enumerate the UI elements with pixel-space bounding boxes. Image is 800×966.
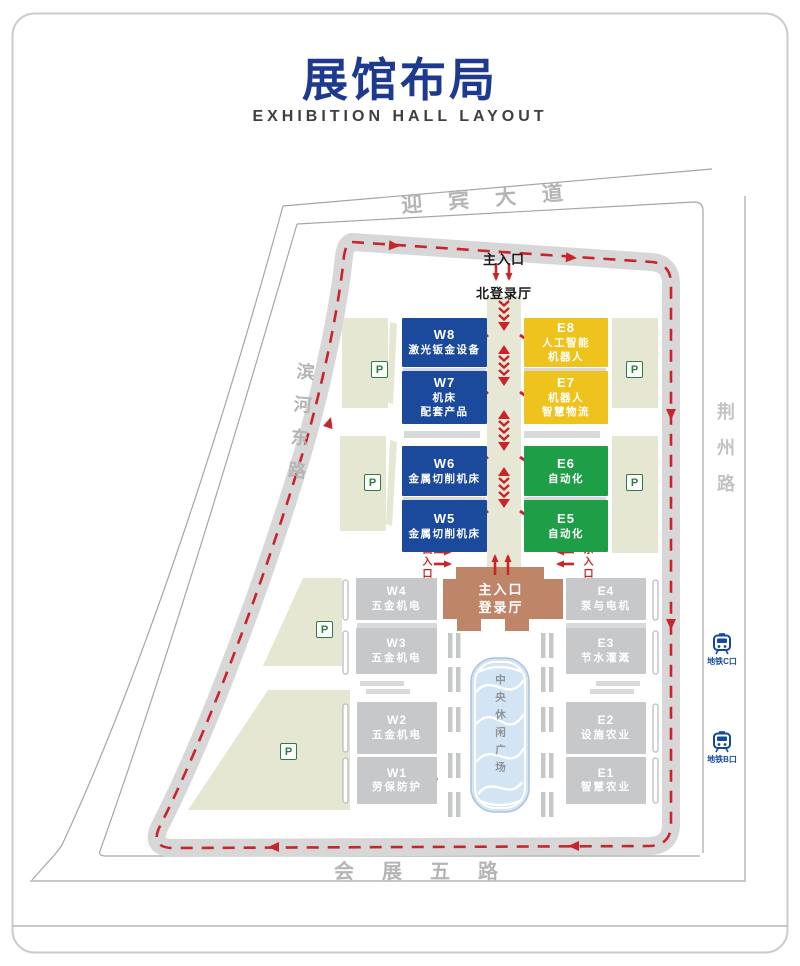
hall-code: E2 (598, 713, 615, 729)
hall-name: 金属切削机床 (409, 473, 481, 487)
hall-name: 五金机电 (372, 600, 422, 614)
hall-code: W7 (434, 375, 456, 392)
metro-b-label: 地铁B口 (707, 754, 737, 765)
central-plaza-label: 中央休闲广场 (493, 674, 508, 800)
hall-e5: E5 自动化 (524, 500, 608, 552)
parking-icon: P (280, 743, 297, 760)
hall-name: 泵与电机 (581, 600, 631, 614)
hall-code: E4 (598, 584, 615, 600)
metro-entrance-b: 地铁B口 (699, 730, 745, 765)
hall-name: 智慧物流 (542, 406, 590, 420)
parking-icon: P (626, 361, 643, 378)
hall-e6: E6 自动化 (524, 446, 608, 496)
hall-code: E3 (598, 636, 615, 652)
parking-icon: P (626, 474, 643, 491)
hall-name: 机器人 (548, 392, 584, 406)
hall-e3: E3 节水灌溉 (566, 628, 646, 674)
train-icon (710, 632, 734, 655)
hall-e1: E1 智慧农业 (566, 757, 646, 804)
hall-code: W2 (387, 713, 407, 729)
hall-w7: W7 机床 配套产品 (402, 371, 487, 424)
hall-code: W3 (387, 636, 407, 652)
hall-name: 五金机电 (372, 729, 422, 743)
exhibition-layout-poster: 展馆布局 EXHIBITION HALL LAYOUT 迎宾大道 滨河东路 荆州… (0, 0, 800, 966)
hall-code: E5 (557, 511, 575, 528)
parking-icon: P (316, 621, 333, 638)
hall-w5: W5 金属切削机床 (402, 500, 487, 552)
hall-w1: W1 劳保防护 (357, 757, 437, 804)
main-hall-line2: 登录厅 (478, 599, 523, 617)
hall-w3: W3 五金机电 (356, 628, 437, 674)
hall-code: W1 (387, 766, 407, 782)
hall-code: E1 (598, 766, 615, 782)
main-entrance-north-label: 主入口 (474, 249, 534, 268)
hall-name: 设施农业 (581, 729, 631, 743)
train-icon (710, 730, 734, 753)
hall-e2: E2 设施农业 (566, 702, 646, 754)
hall-w4: W4 五金机电 (356, 578, 437, 620)
hall-name: 自动化 (548, 528, 584, 542)
hall-code: W8 (434, 327, 456, 344)
hall-w6: W6 金属切削机床 (402, 446, 487, 496)
hall-w2: W2 五金机电 (357, 702, 437, 754)
hall-code: W6 (434, 456, 456, 473)
page-title: 展馆布局 (0, 44, 800, 110)
road-south-label: 会展五路 (230, 855, 630, 884)
hall-w8: W8 激光钣金设备 (402, 318, 487, 367)
metro-entrance-c: 地铁C口 (699, 632, 745, 667)
hall-name: 智慧农业 (581, 781, 631, 795)
hall-name: 配套产品 (421, 406, 469, 420)
hall-code: E7 (557, 375, 575, 392)
page-subtitle: EXHIBITION HALL LAYOUT (0, 108, 800, 126)
parking-icon: P (371, 361, 388, 378)
hall-name: 劳保防护 (372, 781, 422, 795)
road-east-label: 荆州路 (712, 402, 738, 532)
central-corridor (487, 296, 521, 578)
parking-icon: P (364, 474, 381, 491)
hall-name: 激光钣金设备 (409, 344, 481, 358)
hall-e8: E8 人工智能 机器人 (524, 318, 608, 367)
hall-code: E6 (557, 456, 575, 473)
hall-e7: E7 机器人 智慧物流 (524, 371, 608, 424)
main-hall-line1: 主入口 (478, 581, 523, 599)
hall-name: 自动化 (548, 473, 584, 487)
hall-name: 机器人 (548, 351, 584, 365)
main-hall-label: 主入口 登录厅 (448, 581, 554, 617)
hall-e4: E4 泵与电机 (566, 578, 646, 620)
north-registration-hall-label: 北登录厅 (467, 283, 541, 302)
hall-name: 人工智能 (542, 337, 590, 351)
hall-code: E8 (557, 320, 575, 337)
hall-name: 金属切削机床 (409, 528, 481, 542)
map-canvas (0, 0, 800, 966)
hall-name: 节水灌溉 (581, 652, 631, 666)
metro-c-label: 地铁C口 (707, 656, 737, 667)
hall-name: 五金机电 (372, 652, 422, 666)
hall-name: 机床 (433, 392, 457, 406)
hall-code: W4 (387, 584, 407, 600)
hall-code: W5 (434, 511, 456, 528)
